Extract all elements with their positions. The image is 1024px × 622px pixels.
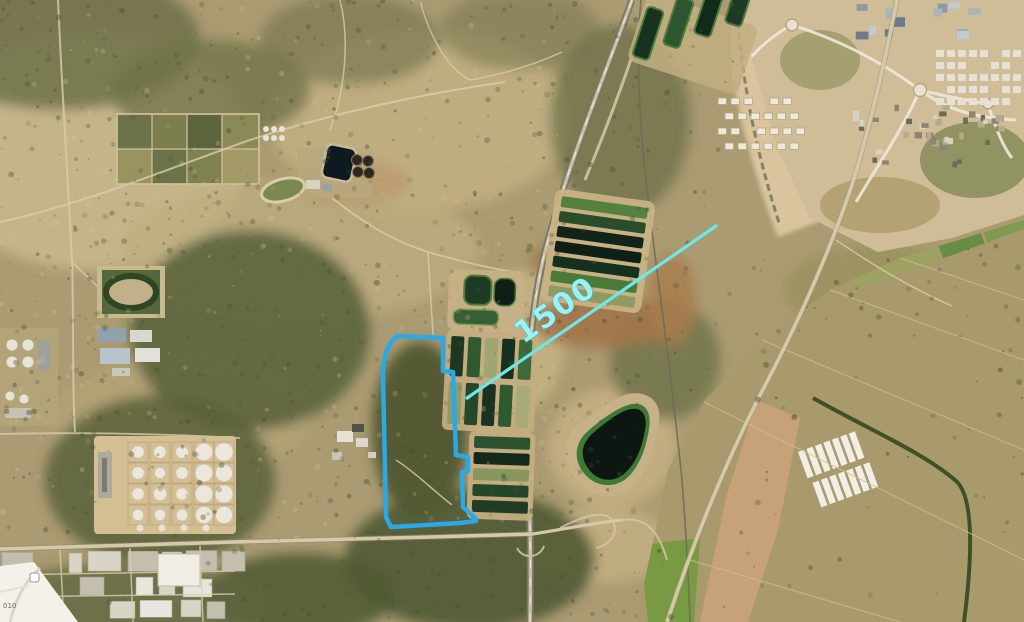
road-shield-icon <box>30 573 39 582</box>
inset-label: 010 <box>3 602 16 610</box>
map-canvas: 010 1500 <box>0 0 1024 622</box>
field-plots-grid <box>117 114 259 184</box>
stadium-track <box>97 266 165 318</box>
large-warehouse <box>158 554 200 586</box>
satellite-map-screenshot: 010 1500 <box>0 0 1024 622</box>
